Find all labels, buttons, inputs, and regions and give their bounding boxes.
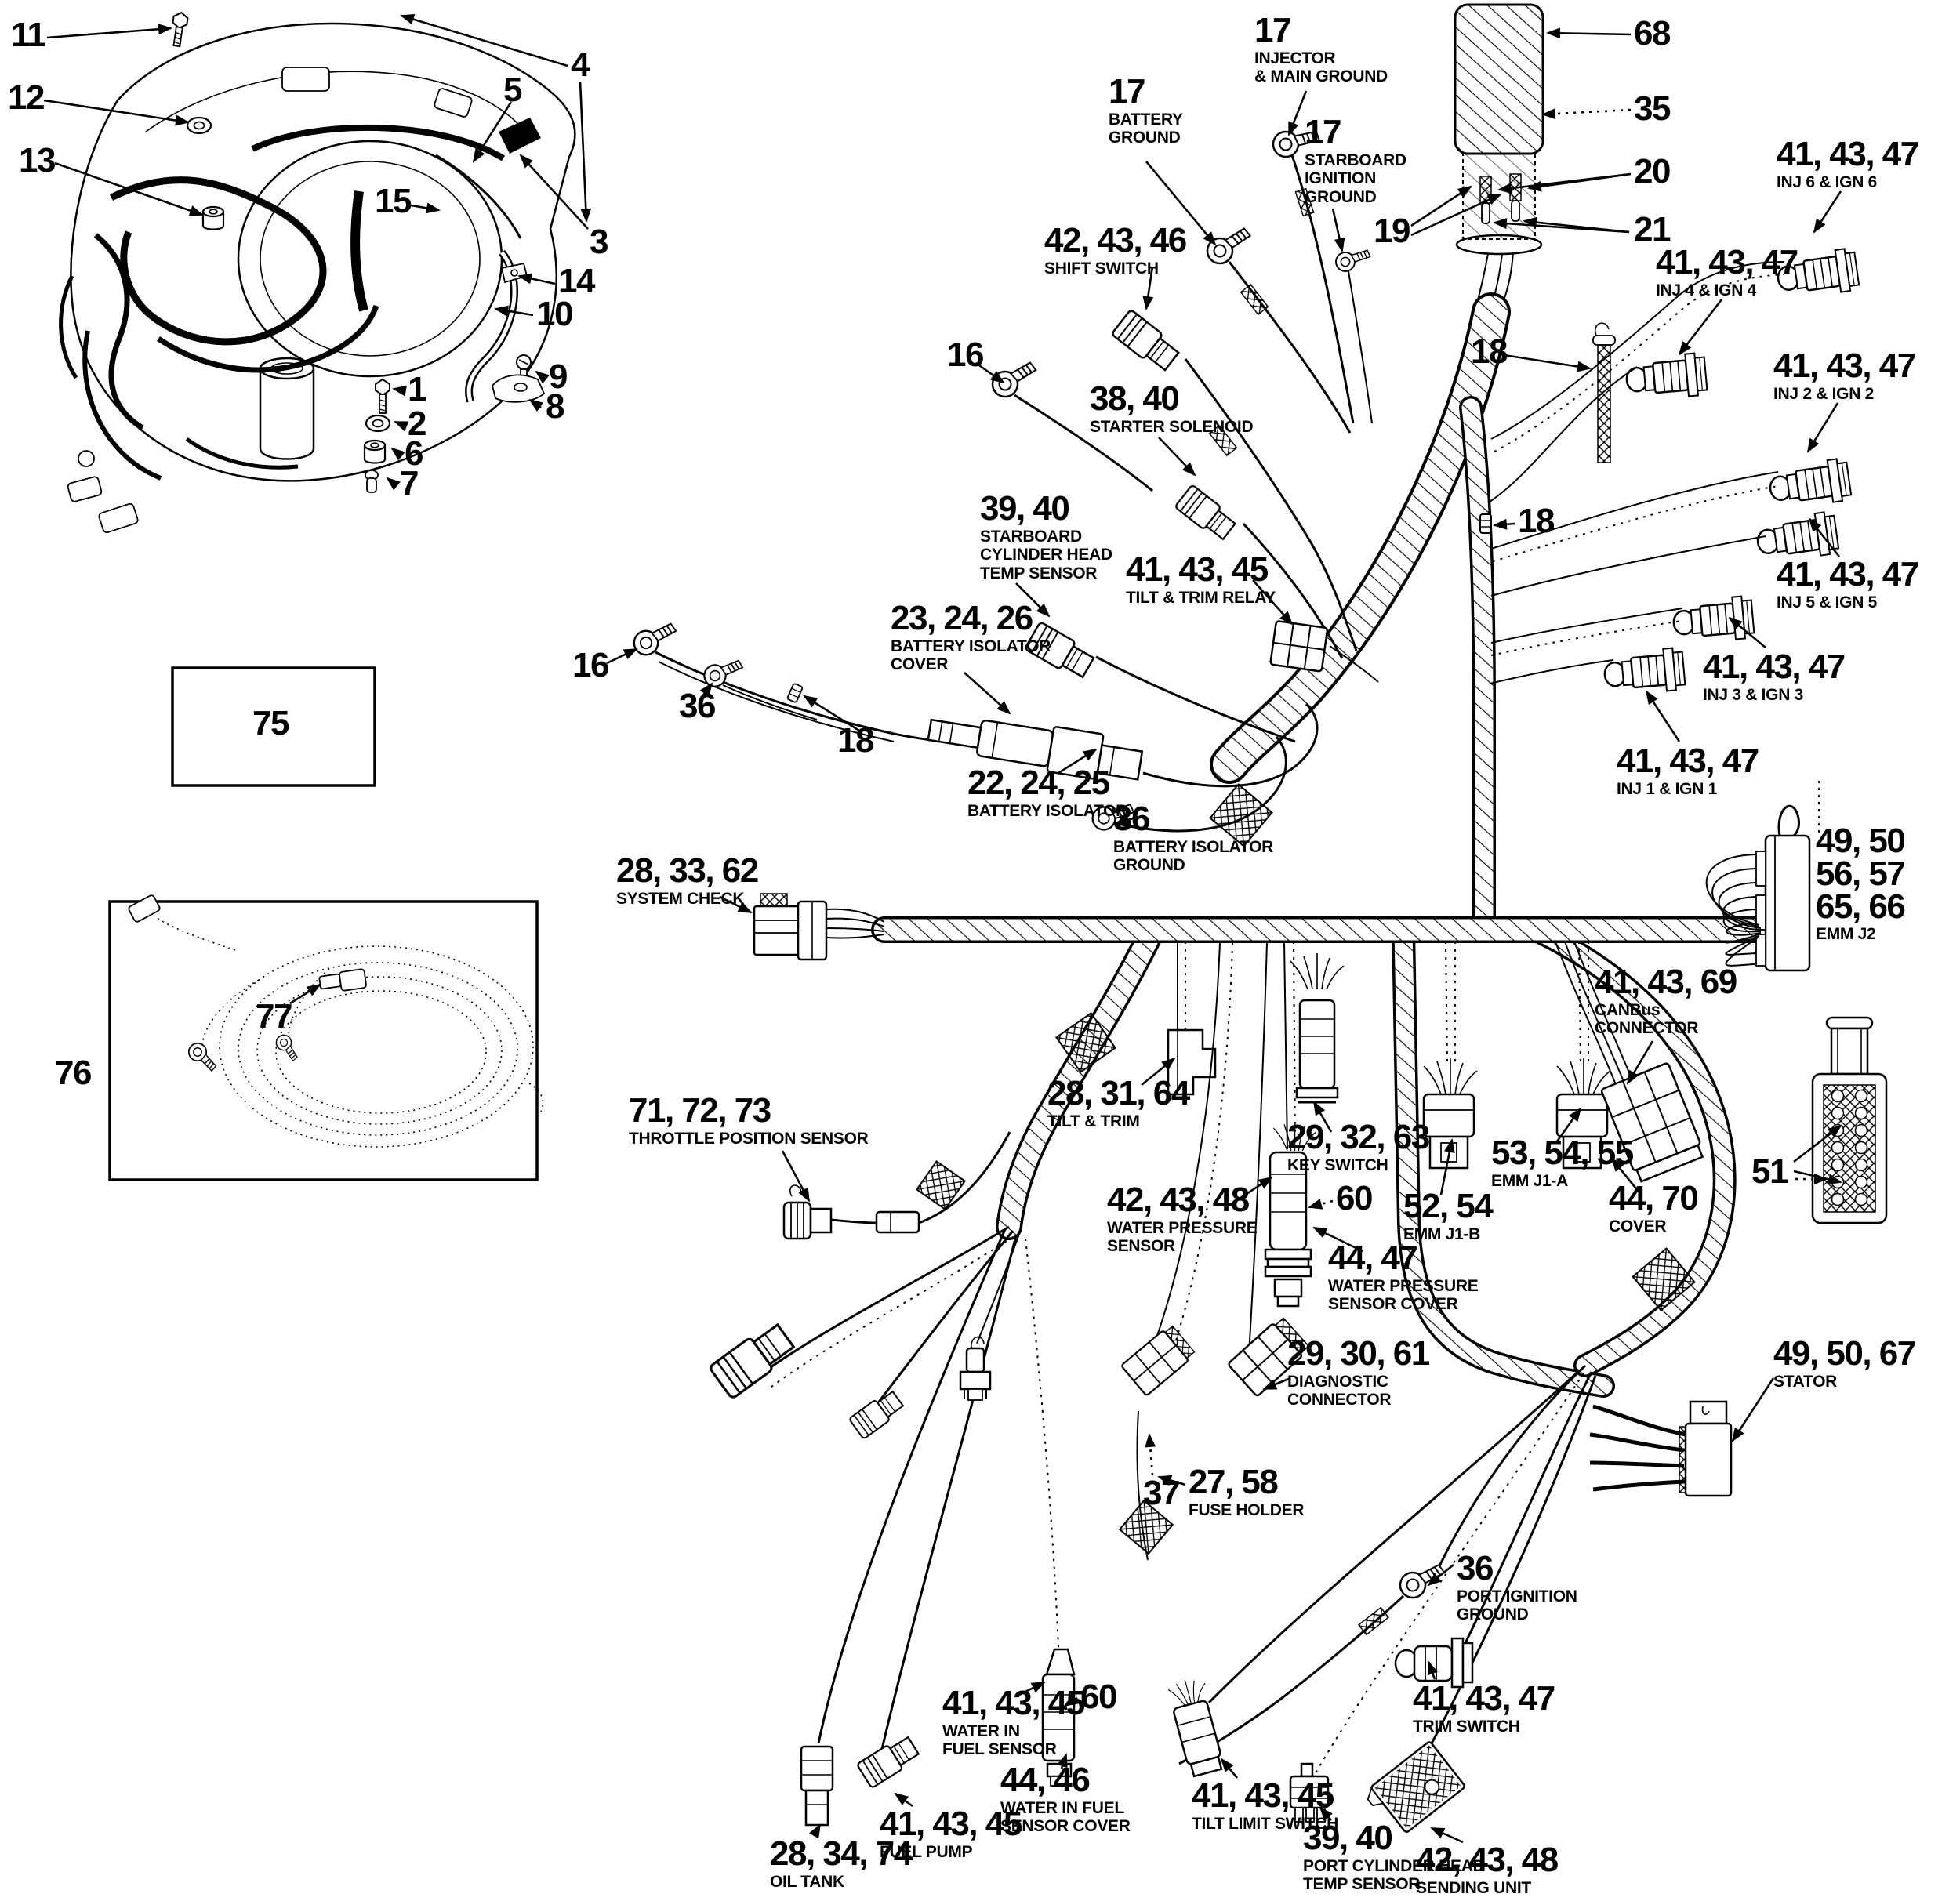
part-numbers: 39, 40: [980, 492, 1112, 525]
part-numbers: 41, 43, 47: [1656, 246, 1798, 279]
callout-68: 68: [1634, 17, 1670, 50]
part-numbers: 44, 70: [1609, 1182, 1697, 1215]
callout-12: 12: [8, 82, 44, 114]
part-numbers: 51: [1751, 1155, 1788, 1188]
part-numbers: 14: [558, 265, 594, 298]
callout-tt: 28, 31, 64 TILT & TRIM: [1047, 1077, 1189, 1130]
diagram-page: 11 12 13 4 5 15 3 14 10 9: [0, 0, 1960, 1901]
callout-17b: 17 INJECTOR & MAIN GROUND: [1254, 14, 1388, 86]
callout-big: 36 BATTERY ISOLATOR GROUND: [1113, 803, 1273, 875]
callout-35: 35: [1634, 93, 1670, 125]
callout-75: 75: [252, 707, 289, 740]
callout-1: 1: [408, 373, 426, 406]
part-name: STARBOARD CYLINDER HEAD TEMP SENSOR: [980, 528, 1112, 583]
callout-i3: 41, 43, 47 INJ 3 & IGN 3: [1703, 651, 1845, 704]
part-name: THROTTLE POSITION SENSOR: [629, 1130, 868, 1148]
callout-i6: 41, 43, 47 INJ 6 & IGN 6: [1777, 138, 1918, 191]
callout-37: 37: [1143, 1477, 1179, 1510]
part-numbers: 19: [1374, 215, 1410, 248]
part-name: INJECTOR & MAIN GROUND: [1254, 49, 1388, 86]
part-numbers: 41, 43, 47: [1413, 1682, 1555, 1715]
callout-19: 19: [1374, 215, 1410, 248]
part-numbers: 20: [1634, 155, 1670, 188]
part-name: INJ 4 & IGN 4: [1656, 281, 1798, 300]
part-name: SYSTEM CHECK: [616, 890, 758, 909]
callout-60a: 60: [1336, 1182, 1372, 1215]
part-numbers: 17: [1254, 14, 1388, 47]
callout-i5: 41, 43, 47 INJ 5 & IGN 5: [1777, 558, 1918, 611]
part-numbers: 1: [408, 373, 426, 406]
callout-3: 3: [590, 226, 608, 259]
callout-5: 5: [503, 74, 521, 107]
part-numbers: 17: [1305, 116, 1406, 149]
callout-i2: 41, 43, 47 INJ 2 & IGN 2: [1773, 350, 1915, 403]
part-numbers: 71, 72, 73: [629, 1094, 868, 1127]
part-numbers: 10: [536, 298, 572, 331]
part-numbers: 42, 43, 48: [1416, 1844, 1558, 1877]
part-numbers: 44, 46: [1000, 1764, 1131, 1797]
part-name: STARBOARD IGNITION GROUND: [1305, 151, 1406, 207]
callout-60b: 60: [1080, 1681, 1116, 1714]
part-numbers: 3: [590, 226, 608, 259]
part-numbers: 22, 24, 25: [967, 767, 1127, 800]
part-name: BATTERY ISOLATOR GROUND: [1113, 838, 1273, 875]
callout-14: 14: [558, 265, 594, 298]
part-name: FUSE HOLDER: [1189, 1501, 1304, 1520]
part-numbers: 5: [503, 74, 521, 107]
part-name: INJ 3 & IGN 3: [1703, 686, 1845, 705]
callout-21: 21: [1634, 213, 1670, 246]
callout-11: 11: [11, 19, 45, 52]
part-numbers: 49, 50 56, 57 65, 66: [1816, 825, 1904, 923]
part-name: BATTERY GROUND: [1109, 111, 1183, 147]
part-numbers: 77: [256, 1000, 292, 1033]
callout-ss: 42, 43, 46 SHIFT SWITCH: [1044, 224, 1186, 278]
part-name: DIAGNOSTIC CONNECTOR: [1287, 1373, 1429, 1409]
part-numbers: 28, 33, 62: [616, 854, 758, 887]
part-numbers: 29, 32, 63: [1287, 1121, 1429, 1154]
part-name: WATER PRESSURE SENSOR: [1107, 1219, 1257, 1256]
part-numbers: 37: [1143, 1477, 1179, 1510]
part-name: CANBus CONNECTOR: [1595, 1001, 1737, 1038]
part-numbers: 36: [1113, 803, 1273, 836]
part-name: TILT & TRIM: [1047, 1112, 1189, 1131]
part-name: SHIFT SWITCH: [1044, 259, 1186, 278]
part-numbers: 41, 43, 47: [1777, 558, 1918, 591]
callout-4: 4: [571, 49, 589, 82]
part-name: INJ 6 & IGN 6: [1777, 173, 1918, 192]
part-name: EMM J2: [1816, 925, 1904, 944]
part-name: TRIM SWITCH: [1413, 1718, 1555, 1736]
part-numbers: 29, 30, 61: [1287, 1337, 1429, 1370]
callout-7: 7: [400, 467, 418, 500]
part-numbers: 16: [947, 339, 983, 372]
callout-tsw: 41, 43, 47 TRIM SWITCH: [1413, 1682, 1555, 1736]
part-numbers: 18: [1471, 336, 1507, 368]
part-name: TILT & TRIM RELAY: [1126, 589, 1276, 608]
callout-10: 10: [536, 298, 572, 331]
part-name: PORT IGNITION GROUND: [1457, 1587, 1577, 1624]
callout-20: 20: [1634, 155, 1670, 188]
part-name: EMM J1-B: [1403, 1225, 1492, 1244]
part-numbers: 4: [571, 49, 589, 82]
part-numbers: 13: [19, 144, 55, 177]
part-numbers: 8: [546, 390, 564, 423]
callout-wpc: 44, 47 WATER PRESSURE SENSOR COVER: [1328, 1242, 1478, 1314]
callout-diag: 29, 30, 61 DIAGNOSTIC CONNECTOR: [1287, 1337, 1429, 1409]
part-numbers: 15: [375, 185, 411, 218]
callout-17c: 17 STARBOARD IGNITION GROUND: [1305, 116, 1406, 206]
part-numbers: 41, 43, 47: [1777, 138, 1918, 171]
callout-bi: 22, 24, 25 BATTERY ISOLATOR: [967, 767, 1127, 820]
callout-tps: 71, 72, 73 THROTTLE POSITION SENSOR: [629, 1094, 868, 1148]
part-numbers: 41, 43, 47: [1703, 651, 1845, 684]
part-name: BATTERY ISOLATOR COVER: [891, 637, 1051, 674]
part-numbers: 44, 47: [1328, 1242, 1478, 1275]
part-name: WATER PRESSURE SENSOR COVER: [1328, 1277, 1478, 1314]
part-numbers: 35: [1634, 93, 1670, 125]
callout-51: 51: [1751, 1155, 1788, 1188]
part-numbers: 41, 43, 69: [1595, 966, 1737, 999]
part-numbers: 41, 43, 47: [1773, 350, 1915, 383]
part-numbers: 27, 58: [1189, 1466, 1304, 1499]
callout-13: 13: [19, 144, 55, 177]
part-numbers: 42, 43, 48: [1107, 1184, 1257, 1217]
callout-j1b: 52, 54 EMM J1-B: [1403, 1190, 1492, 1243]
part-name: BATTERY ISOLATOR: [967, 802, 1127, 821]
callout-18c: 18: [837, 724, 873, 757]
callout-bic: 23, 24, 26 BATTERY ISOLATOR COVER: [891, 602, 1051, 674]
part-numbers: 42, 43, 46: [1044, 224, 1186, 257]
callout-sol: 38, 40 STARTER SOLENOID: [1090, 383, 1253, 436]
part-numbers: 52, 54: [1403, 1190, 1492, 1223]
callout-16b: 16: [572, 649, 608, 682]
callout-can: 41, 43, 69 CANBus CONNECTOR: [1595, 966, 1737, 1038]
callout-j2: 49, 50 56, 57 65, 66 EMM J2: [1816, 825, 1904, 944]
callout-wps: 42, 43, 48 WATER PRESSURE SENSOR: [1107, 1184, 1257, 1256]
part-numbers: 28, 31, 64: [1047, 1077, 1189, 1110]
callout-layer: 11 12 13 4 5 15 3 14 10 9: [0, 0, 1960, 1901]
callout-15: 15: [375, 185, 411, 218]
callout-wif: 41, 43, 45 WATER IN FUEL SENSOR: [942, 1687, 1084, 1759]
part-name: INJ 1 & IGN 1: [1617, 780, 1759, 799]
callout-18b: 18: [1518, 505, 1554, 538]
part-numbers: 49, 50, 67: [1773, 1337, 1915, 1370]
part-numbers: 16: [572, 649, 608, 682]
callout-ot: 28, 34, 74 OIL TANK: [770, 1838, 912, 1891]
part-numbers: 60: [1336, 1182, 1372, 1215]
part-numbers: 41, 43, 45: [1126, 553, 1276, 586]
part-numbers: 18: [1518, 505, 1554, 538]
callout-76: 76: [55, 1057, 91, 1090]
callout-ks: 29, 32, 63 KEY SWITCH: [1287, 1121, 1429, 1174]
part-numbers: 41, 43, 45: [1192, 1779, 1338, 1812]
part-name: STARTER SOLENOID: [1090, 418, 1253, 437]
callout-77: 77: [256, 1000, 292, 1033]
callout-17a: 17 BATTERY GROUND: [1109, 75, 1183, 147]
part-numbers: 7: [400, 467, 418, 500]
part-name: KEY SWITCH: [1287, 1156, 1429, 1175]
callout-su: 42, 43, 48 SENDING UNIT: [1416, 1844, 1558, 1897]
part-name: COVER: [1609, 1217, 1697, 1236]
part-numbers: 41, 43, 45: [942, 1687, 1084, 1720]
part-numbers: 76: [55, 1057, 91, 1090]
part-numbers: 60: [1080, 1681, 1116, 1714]
part-numbers: 28, 34, 74: [770, 1838, 912, 1870]
part-numbers: 36: [1457, 1552, 1577, 1585]
callout-cov: 44, 70 COVER: [1609, 1182, 1697, 1235]
part-numbers: 38, 40: [1090, 383, 1253, 415]
callout-st: 49, 50, 67 STATOR: [1773, 1337, 1915, 1391]
part-numbers: 21: [1634, 213, 1670, 246]
callout-i1: 41, 43, 47 INJ 1 & IGN 1: [1617, 745, 1759, 798]
callout-sct: 39, 40 STARBOARD CYLINDER HEAD TEMP SENS…: [980, 492, 1112, 582]
callout-8: 8: [546, 390, 564, 423]
part-name: INJ 5 & IGN 5: [1777, 593, 1918, 612]
callout-16a: 16: [947, 339, 983, 372]
part-numbers: 53, 54, 55: [1491, 1137, 1633, 1170]
part-numbers: 18: [837, 724, 873, 757]
part-numbers: 75: [252, 707, 289, 740]
callout-fh: 27, 58 FUSE HOLDER: [1189, 1466, 1304, 1519]
callout-sc: 28, 33, 62 SYSTEM CHECK: [616, 854, 758, 908]
callout-ttr: 41, 43, 45 TILT & TRIM RELAY: [1126, 553, 1276, 607]
callout-pig: 36 PORT IGNITION GROUND: [1457, 1552, 1577, 1624]
part-numbers: 23, 24, 26: [891, 602, 1051, 635]
callout-i4: 41, 43, 47 INJ 4 & IGN 4: [1656, 246, 1798, 299]
part-name: OIL TANK: [770, 1873, 912, 1892]
part-numbers: 68: [1634, 17, 1670, 50]
part-numbers: 12: [8, 82, 44, 114]
part-numbers: 11: [11, 19, 45, 52]
part-name: STATOR: [1773, 1373, 1915, 1391]
part-name: WATER IN FUEL SENSOR: [942, 1722, 1084, 1759]
callout-18a: 18: [1471, 336, 1507, 368]
part-numbers: 36: [679, 690, 715, 723]
part-name: INJ 2 & IGN 2: [1773, 385, 1915, 404]
callout-36a: 36: [679, 690, 715, 723]
part-name: SENDING UNIT: [1416, 1879, 1558, 1898]
part-numbers: 41, 43, 47: [1617, 745, 1759, 778]
part-numbers: 17: [1109, 75, 1183, 108]
